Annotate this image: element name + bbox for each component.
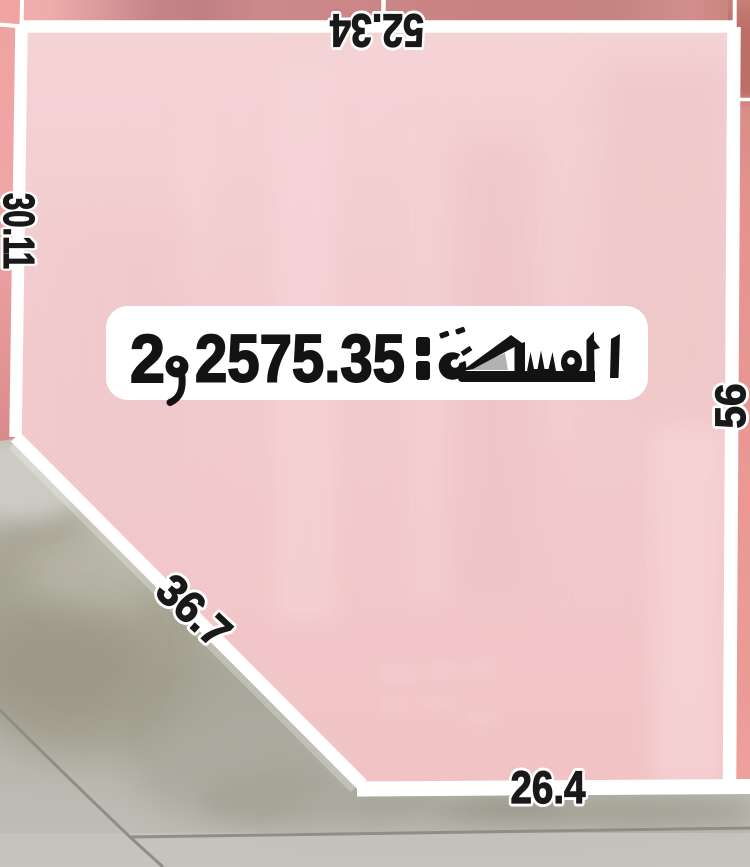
svg-text:2: 2 (130, 321, 165, 397)
svg-text:2575.35: 2575.35 (195, 322, 405, 397)
